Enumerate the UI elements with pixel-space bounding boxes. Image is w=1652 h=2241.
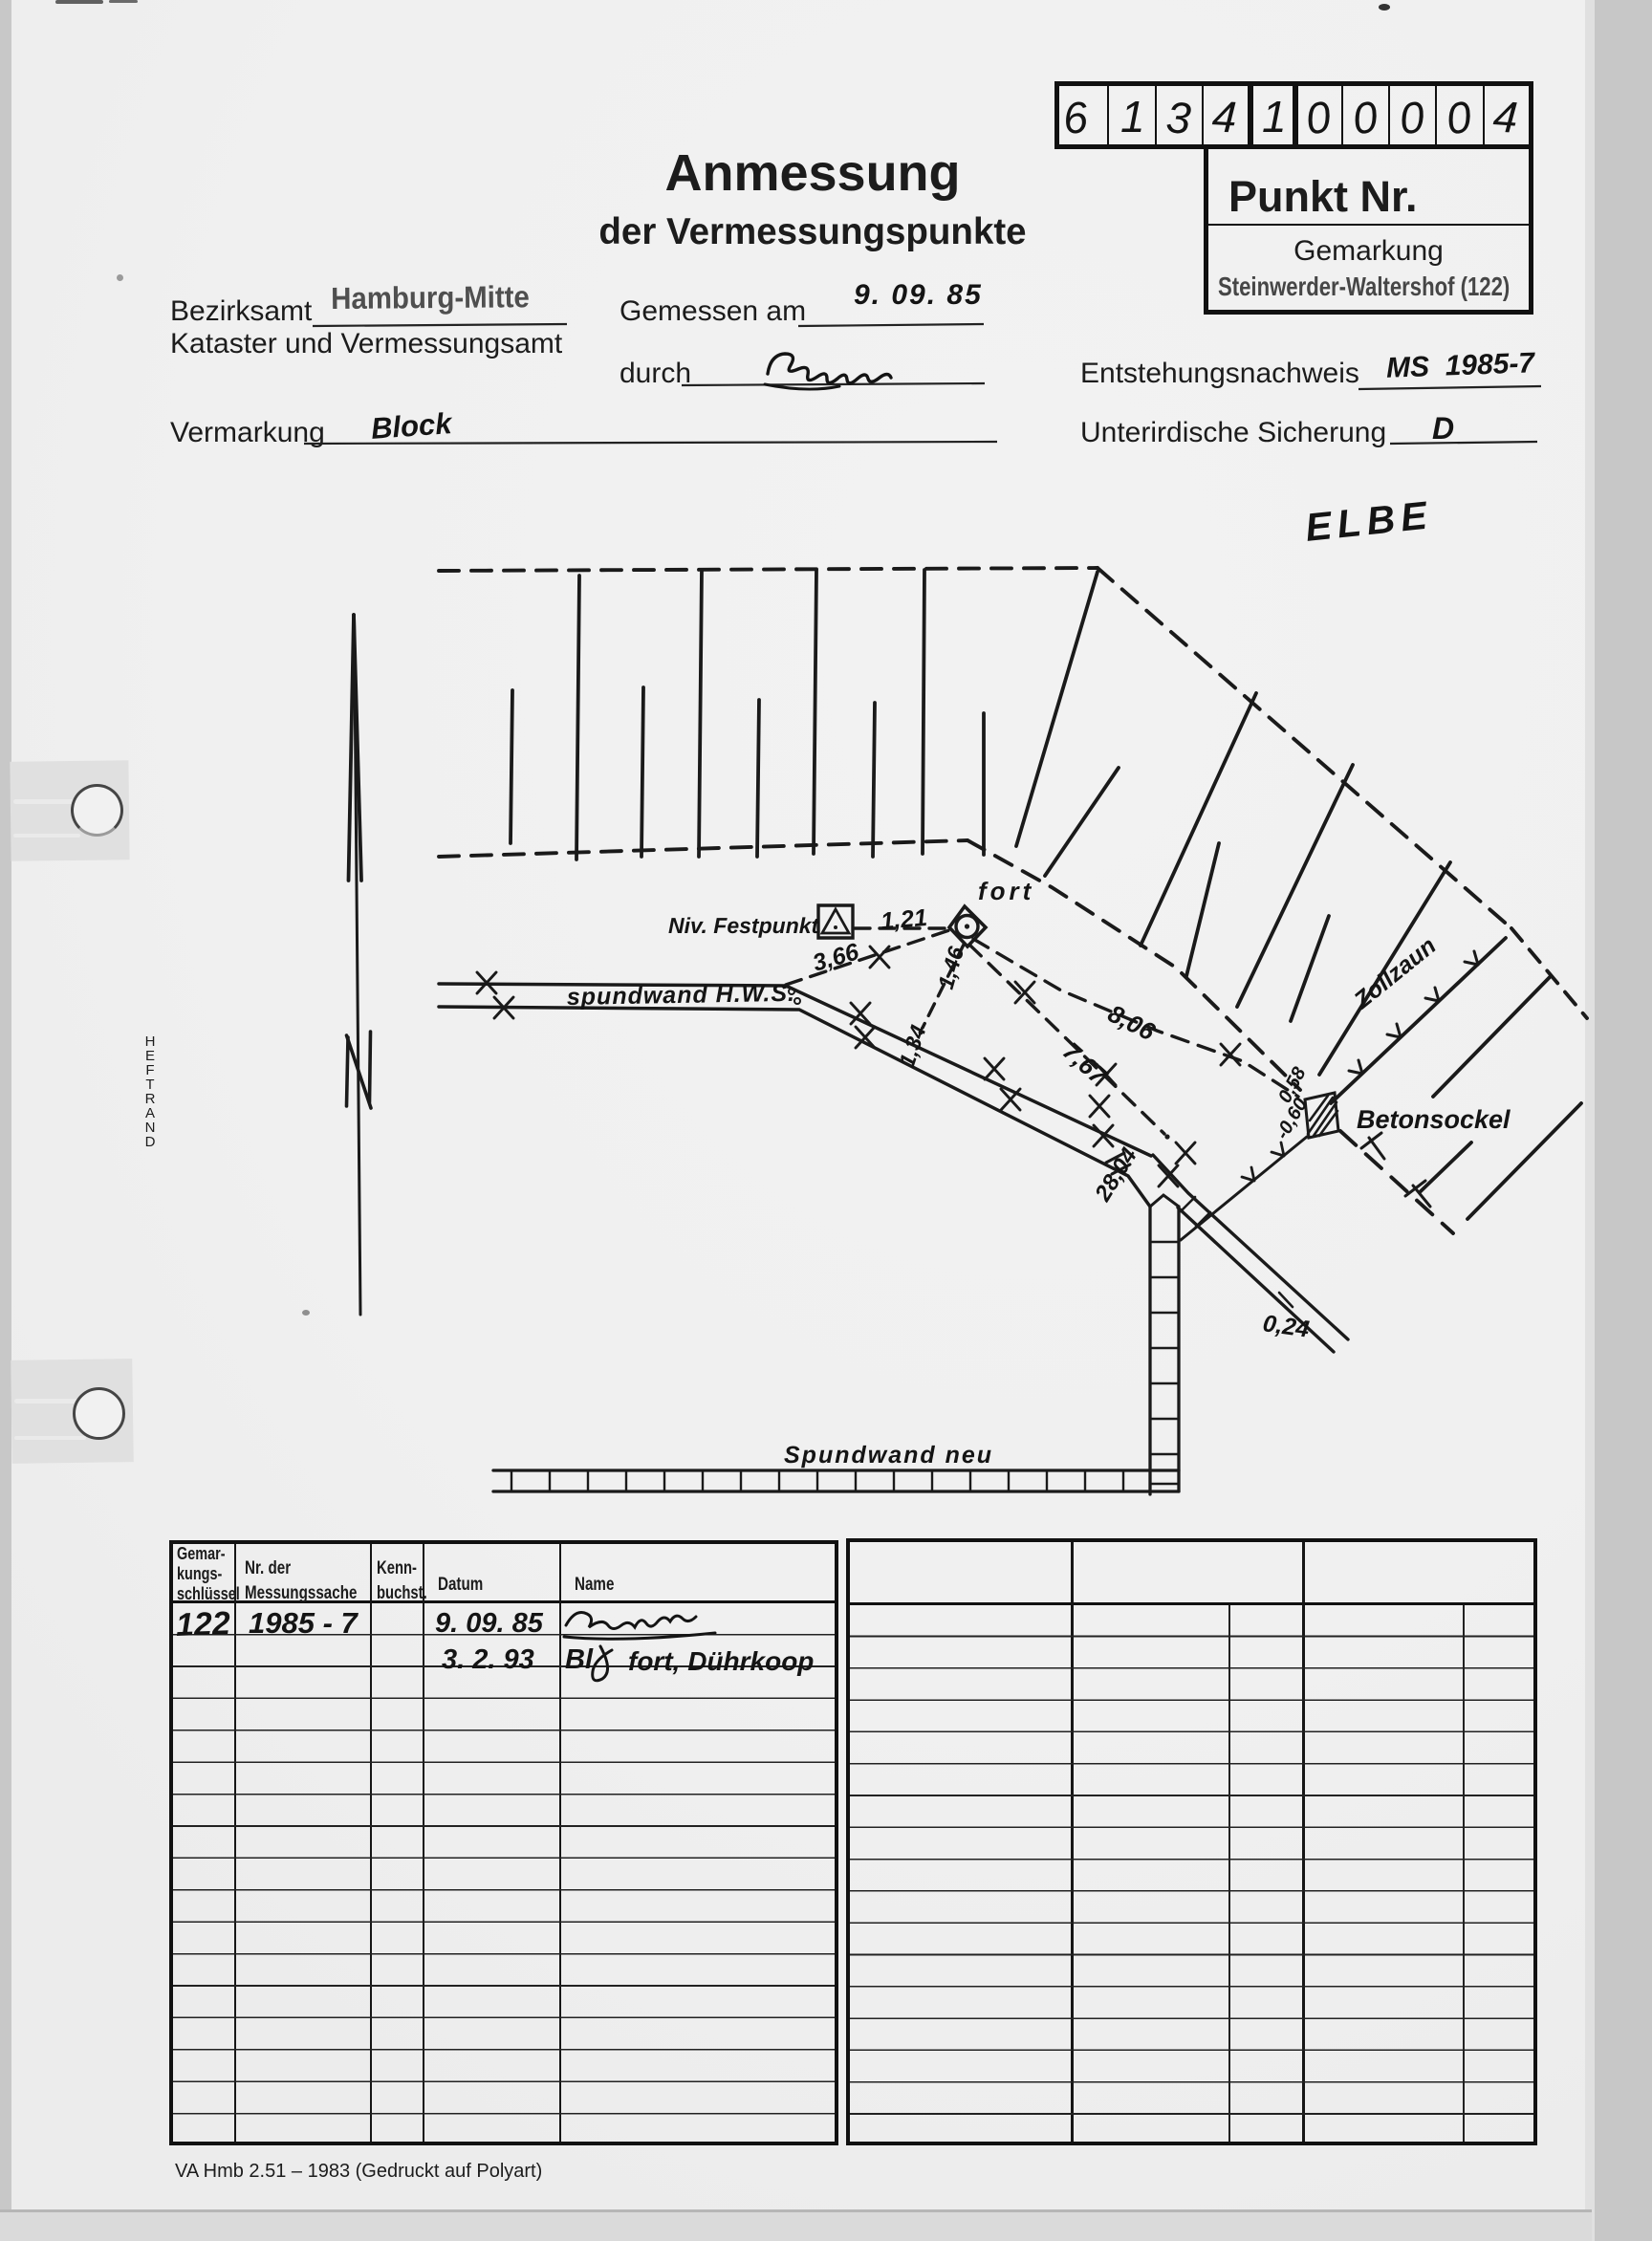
svg-text:spundwand H.W.S.: spundwand H.W.S.: [567, 980, 796, 1011]
svg-text:28,04: 28,04: [1090, 1143, 1142, 1207]
svg-text:7,67: 7,67: [1057, 1036, 1114, 1091]
svg-text:1,46: 1,46: [933, 944, 968, 991]
svg-text:ELBE: ELBE: [1303, 492, 1434, 550]
svg-text:Niv. Festpunkt: Niv. Festpunkt: [668, 913, 820, 938]
svg-text:fort: fort: [978, 877, 1034, 905]
svg-text:1,21: 1,21: [880, 904, 928, 935]
svg-text:Zollzaun: Zollzaun: [1348, 932, 1441, 1014]
svg-text:0,24: 0,24: [1261, 1310, 1311, 1343]
svg-text:Betonsockel: Betonsockel: [1357, 1105, 1511, 1134]
svg-text:8,06: 8,06: [1103, 999, 1160, 1047]
svg-text:3,66: 3,66: [810, 938, 863, 977]
svg-text:1,34: 1,34: [894, 1022, 931, 1071]
svg-text:Spundwand neu: Spundwand neu: [784, 1442, 993, 1469]
